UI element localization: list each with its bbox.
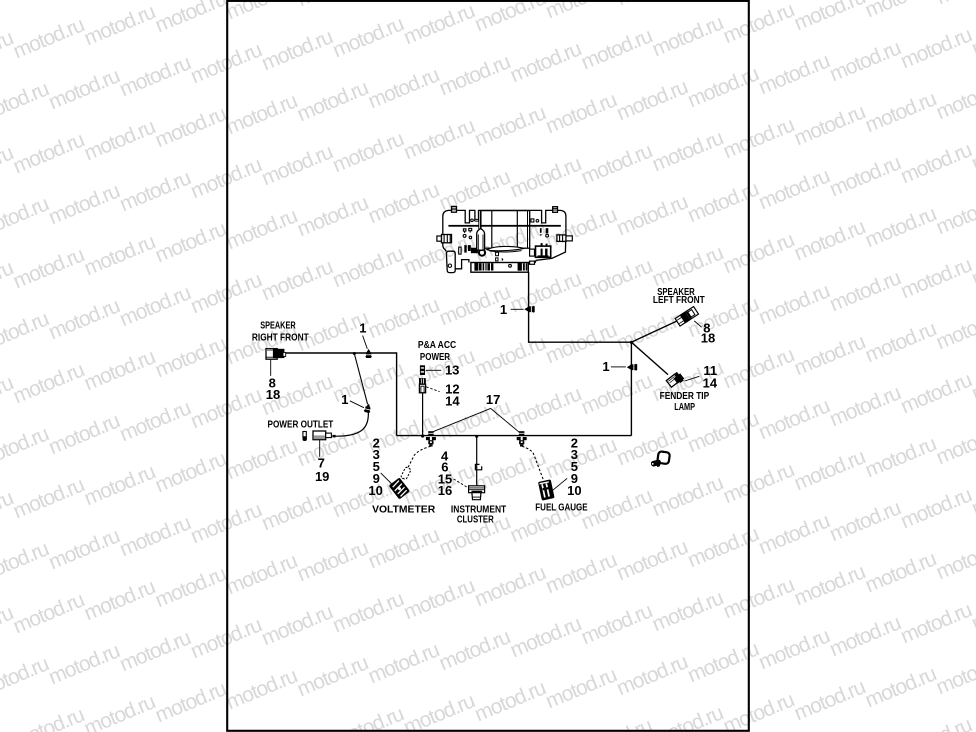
svg-text:FENDER TIP: FENDER TIP: [660, 391, 710, 402]
svg-text:P&A ACC: P&A ACC: [418, 340, 457, 351]
svg-text:1: 1: [500, 302, 507, 317]
svg-text:14: 14: [445, 394, 460, 409]
svg-text:FUEL GAUGE: FUEL GAUGE: [535, 503, 587, 514]
svg-text:14: 14: [703, 376, 718, 391]
svg-text:POWER: POWER: [420, 352, 451, 363]
svg-text:19: 19: [315, 469, 329, 484]
svg-text:LAMP: LAMP: [674, 402, 695, 413]
svg-text:18: 18: [701, 331, 715, 346]
svg-text:1: 1: [602, 359, 609, 374]
svg-text:1: 1: [341, 392, 348, 407]
svg-text:17: 17: [486, 392, 500, 407]
svg-text:RIGHT FRONT: RIGHT FRONT: [252, 333, 309, 344]
svg-text:CLUSTER: CLUSTER: [457, 514, 494, 525]
svg-text:VOLTMETER: VOLTMETER: [372, 504, 436, 515]
svg-text:13: 13: [445, 362, 459, 377]
svg-text:POWER OUTLET: POWER OUTLET: [268, 419, 334, 430]
svg-text:LEFT FRONT: LEFT FRONT: [653, 295, 705, 306]
svg-text:1: 1: [359, 320, 366, 335]
svg-text:16: 16: [438, 483, 452, 498]
svg-text:10: 10: [368, 483, 382, 498]
svg-text:SPEAKER: SPEAKER: [260, 321, 296, 332]
svg-text:10: 10: [567, 483, 581, 498]
svg-text:18: 18: [266, 387, 280, 402]
